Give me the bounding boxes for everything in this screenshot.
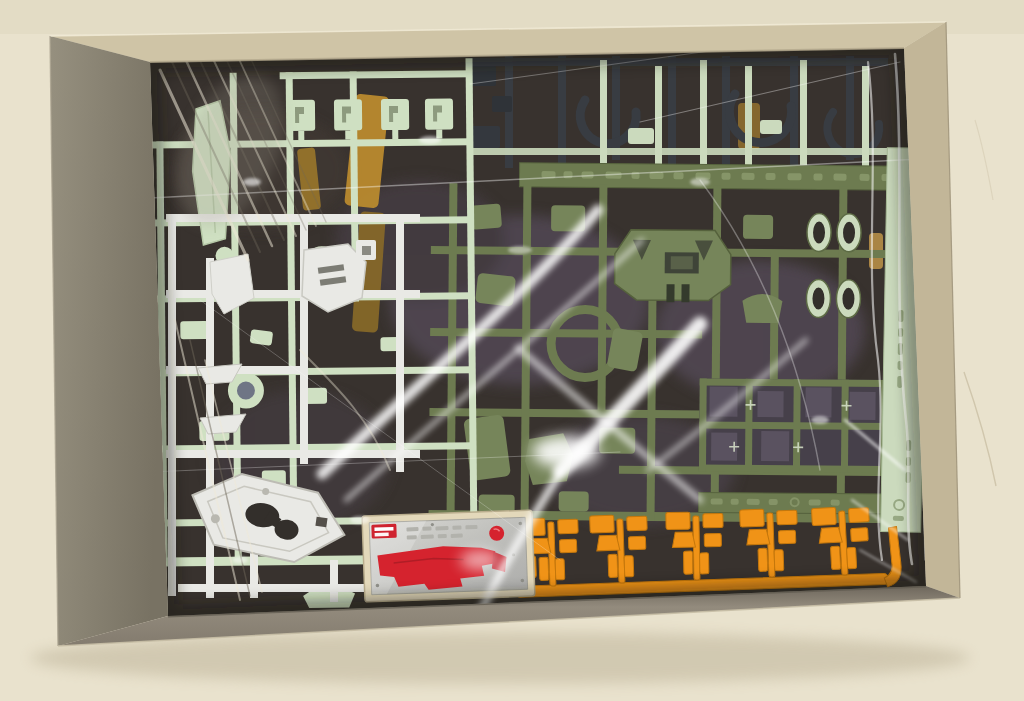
box-left-wall: [50, 36, 168, 646]
olive-torso-part: [614, 230, 731, 303]
model-kit-box-photo: [0, 0, 1024, 701]
olive-cell-grid: [699, 378, 888, 473]
photo-stage: [0, 0, 1024, 701]
sticker-logo-block: [371, 524, 396, 539]
box-contents: [147, 44, 940, 618]
